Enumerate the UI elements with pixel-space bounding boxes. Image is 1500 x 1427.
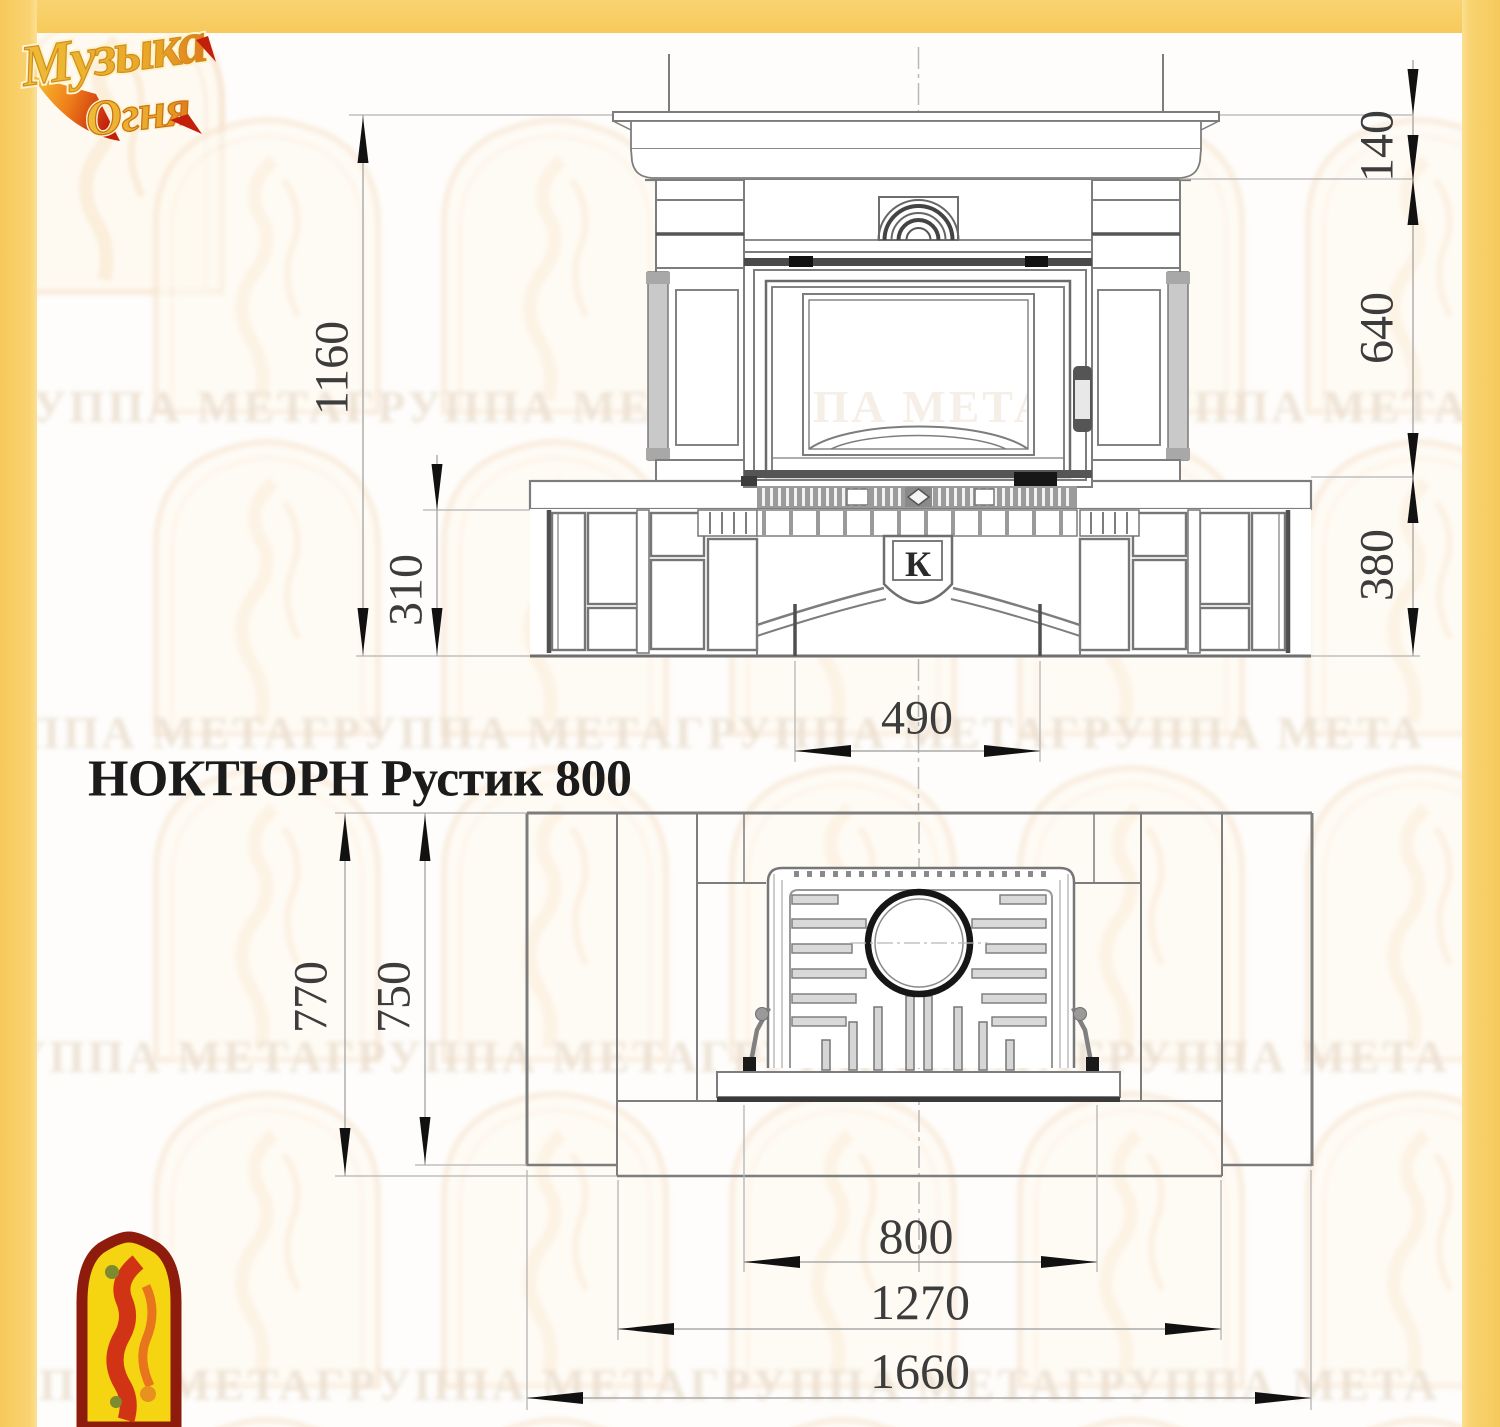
svg-text:1160: 1160 — [306, 321, 359, 415]
svg-text:640: 640 — [1351, 292, 1404, 364]
svg-text:770: 770 — [285, 961, 338, 1033]
svg-text:140: 140 — [1351, 110, 1404, 182]
svg-text:НОКТЮРН Рустик 800: НОКТЮРН Рустик 800 — [88, 751, 632, 808]
svg-text:1270: 1270 — [870, 1274, 970, 1330]
svg-text:310: 310 — [380, 554, 433, 626]
svg-text:750: 750 — [368, 961, 421, 1033]
svg-text:490: 490 — [881, 692, 953, 745]
svg-text:800: 800 — [879, 1208, 954, 1264]
svg-text:К: К — [905, 544, 931, 584]
svg-text:380: 380 — [1351, 529, 1404, 601]
svg-text:1660: 1660 — [870, 1343, 970, 1399]
svg-text:ГРУППА МЕТАГРУППА МЕТАГРУППА М: ГРУППА МЕТАГРУППА МЕТАГРУППА МЕТАГРУППА … — [0, 1359, 1440, 1410]
